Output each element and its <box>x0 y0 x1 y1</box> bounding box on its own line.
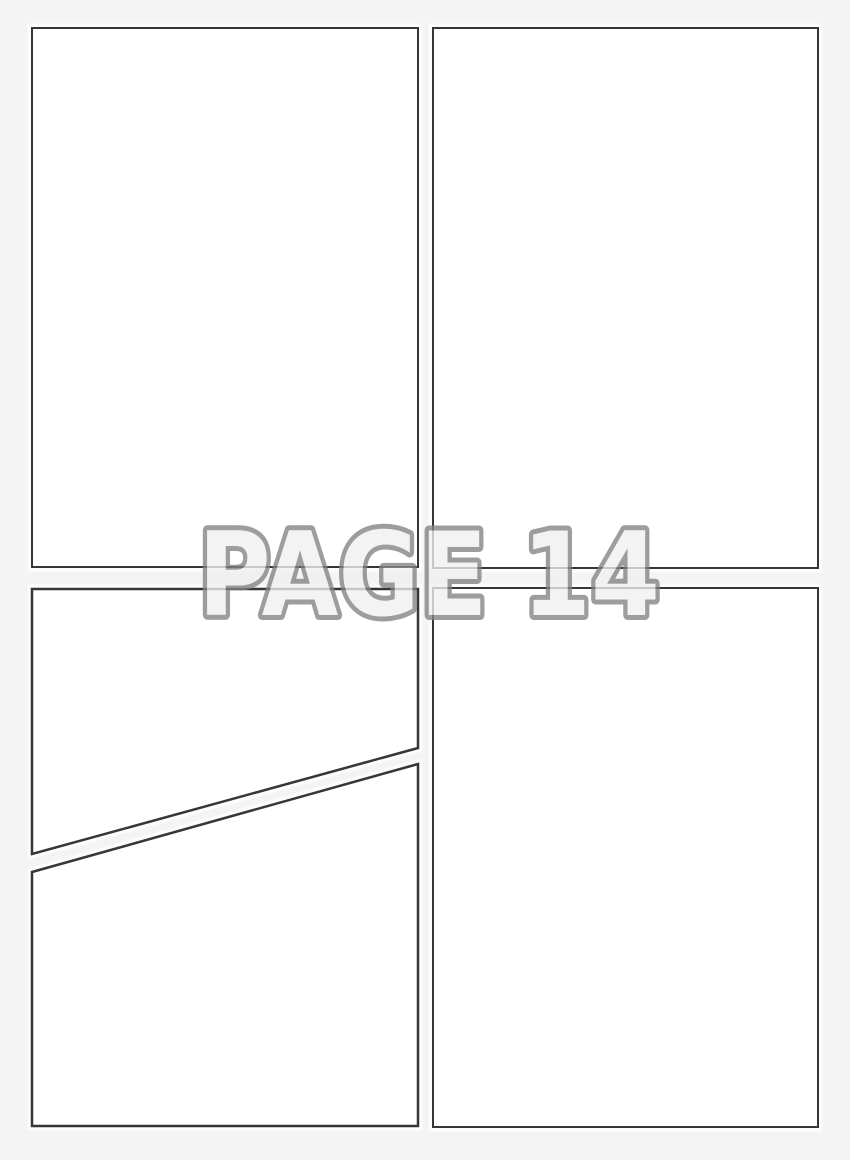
panel-bottom-left <box>32 764 418 1126</box>
panel-bottom-left-halo <box>32 764 418 1126</box>
comic-page-template: PAGE 14 <box>0 0 850 1160</box>
panel-middle-left <box>32 589 418 854</box>
panel-top-right <box>432 27 819 569</box>
panel-bottom-right <box>432 587 819 1128</box>
panel-middle-left-halo <box>32 589 418 854</box>
panel-top-left <box>31 27 419 568</box>
